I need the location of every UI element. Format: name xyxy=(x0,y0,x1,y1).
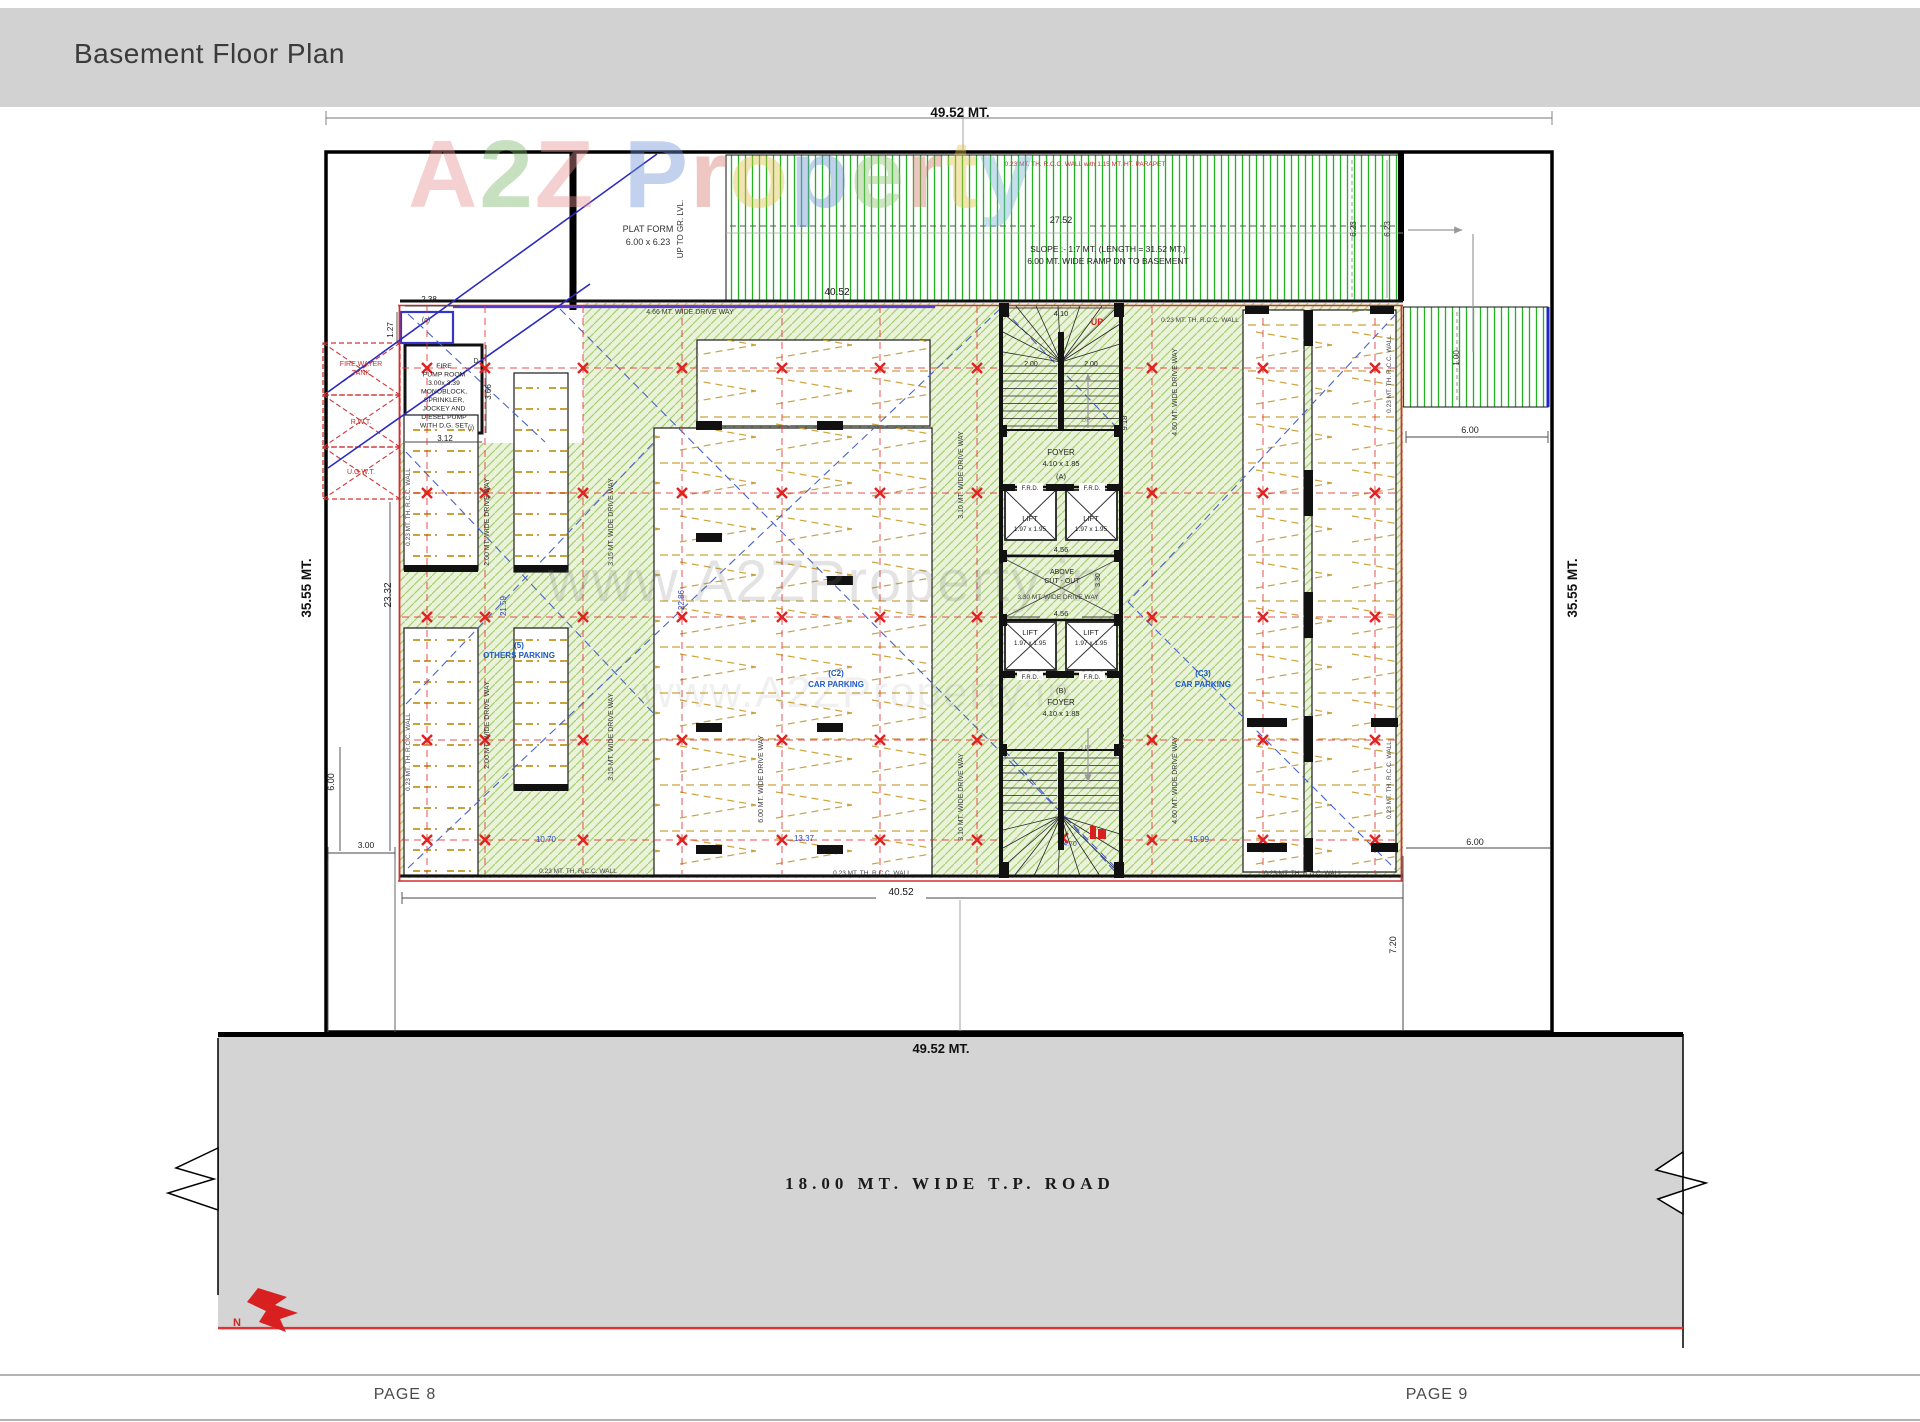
pump-room-text-4: MONOBLOCK, xyxy=(421,389,467,396)
dim-9-41: 9.41 xyxy=(1117,734,1126,749)
lift-b2-label: LIFT xyxy=(1083,628,1099,637)
pump-room-text-5: SPRINKLER, xyxy=(424,397,465,404)
watermark-letter: p xyxy=(790,121,851,228)
stair-a-up-red: UP xyxy=(1091,317,1104,327)
lift-b2-size: 1.97 x 1.95 xyxy=(1075,640,1108,647)
pump-room-text-1: FIRE xyxy=(436,363,452,370)
watermark-url: www.A2ZProperty.in xyxy=(548,548,1105,615)
driveway-3-10-label-1: 3.10 MT. WIDE DRIVE WAY xyxy=(958,431,965,519)
watermark-letter-2: 2 xyxy=(479,121,534,228)
watermark-letter: y xyxy=(979,121,1034,228)
road-label: 18.00 MT. WIDE T.P. ROAD xyxy=(785,1174,1115,1193)
wall-block xyxy=(514,784,568,791)
wall-block xyxy=(1003,484,1015,491)
fire-water-tank-label-2: TANK xyxy=(352,370,370,377)
dim-3-12: 3.12 xyxy=(437,434,453,443)
watermark-letter: e xyxy=(851,121,906,228)
wall-note-bottom-3: 0.23 MT. TH. R.C.C. WALL xyxy=(1264,870,1342,877)
driveway-3-10-label-2: 3.10 MT. WIDE DRIVE WAY xyxy=(958,753,965,841)
c3-parking-tag: (C3) xyxy=(1195,669,1211,678)
wall-block xyxy=(1107,484,1119,491)
wall-block xyxy=(999,862,1009,878)
road-area: 49.52 MT. 18.00 MT. WIDE T.P. ROAD N xyxy=(168,1032,1706,1348)
stair-divider xyxy=(1058,332,1064,430)
parking-bay-marking xyxy=(654,428,932,875)
wall-note-right-1: 0.23 MT. TH. R.C.C. WALL xyxy=(1386,335,1393,413)
fire-equipment-icon xyxy=(1098,829,1106,839)
wall-block xyxy=(1245,306,1269,314)
foyer-a-size: 4.10 x 1.85 xyxy=(1042,459,1079,468)
wall-block xyxy=(999,303,1009,317)
watermark-url-2: www.A2ZProperty.in xyxy=(642,668,1073,718)
stair-b-up-label: UP xyxy=(1081,745,1091,752)
footer-divider-top xyxy=(0,1374,1920,1376)
dim-15-99: 15.99 xyxy=(1189,835,1210,844)
wall-block xyxy=(1114,303,1124,317)
wall-block xyxy=(696,845,722,854)
wall-block xyxy=(1304,470,1313,516)
ramp-slope-note-1: SLOPE :- 1:7 MT. (LENGTH = 31.52 MT.) xyxy=(1030,244,1186,254)
ramp-slope-note-2: 6.00 MT. WIDE RAMP DN TO BASEMENT xyxy=(1027,256,1189,266)
watermark-letter: t xyxy=(945,121,979,228)
driveway-6-00-label: 6.00 MT. WIDE DRIVE WAY xyxy=(758,735,765,823)
pump-room-text-8: WITH D.G. SET xyxy=(420,423,468,430)
pump-tag-d: D xyxy=(473,358,478,365)
dim-10-70: 10.70 xyxy=(536,835,557,844)
dim-23-32: 23.32 xyxy=(383,582,394,607)
rwt-label: R.W.T. xyxy=(351,419,372,426)
pump-room-text-3: 3.00x 3.39 xyxy=(428,380,460,387)
wall-block xyxy=(1371,718,1398,727)
watermark-letter: r xyxy=(906,121,945,228)
dim-1-00: 1.00 xyxy=(1452,350,1461,366)
dim-6-23-a: 6.23 xyxy=(1349,221,1358,237)
parking-bay-marking xyxy=(1243,310,1304,872)
wall-note-bottom-2: 0.23 MT. TH. R.C.C. WALL xyxy=(833,870,911,877)
dim-2-00-a1: 2.00 xyxy=(1024,361,1038,368)
wall-block xyxy=(1247,843,1287,852)
stair-divider xyxy=(1058,752,1064,850)
wall-block xyxy=(1114,550,1122,562)
ugwt-label: U.G.W.T. xyxy=(347,469,375,476)
frd-a2: F.R.D. xyxy=(1084,486,1101,492)
dim-6-00-bottom: 6.00 xyxy=(1466,837,1484,847)
sheet: 49.52 MT. 18.00 MT. WIDE T.P. ROAD N 49.… xyxy=(0,0,1920,1422)
watermark-letter: P xyxy=(624,121,690,228)
watermark-brand: A2Z Property xyxy=(408,120,1035,230)
wall-block xyxy=(1304,592,1313,638)
parking-bay-marking xyxy=(404,628,478,875)
wall-note-right-2: 0.23 MT. TH. R.C.C. WALL xyxy=(1386,741,1393,819)
watermark-word: Property xyxy=(624,121,1035,228)
footer-divider-bottom xyxy=(0,1419,1920,1421)
dim-21-59: 21.59 xyxy=(499,595,508,616)
wall-block xyxy=(1114,862,1124,878)
foyer-a-label: FOYER xyxy=(1047,448,1075,457)
stair-a-up-label: UP xyxy=(1081,417,1091,424)
dim-left-height: 35.55 MT. xyxy=(299,558,314,617)
dim-1-27: 1.27 xyxy=(386,322,395,338)
wall-note-bottom-1: 0.23 MT. TH. R.C.C. WALL xyxy=(539,868,617,875)
frd-b2: F.R.D. xyxy=(1084,675,1101,681)
page-number-right: PAGE 9 xyxy=(1357,1386,1517,1404)
dim-ramp-40-52: 40.52 xyxy=(824,287,849,298)
others-parking-tag: (5) xyxy=(514,641,524,650)
header-bar: Basement Floor Plan xyxy=(0,8,1920,107)
fire-equipment-icon xyxy=(1090,826,1096,839)
parking-bay-marking xyxy=(697,340,930,426)
driveway-3-15-label-2: 3.15 MT. WIDE DRIVE WAY xyxy=(608,693,615,781)
side-platform xyxy=(1403,307,1548,407)
wall-block xyxy=(696,723,722,732)
c3-parking-label: CAR PARKING xyxy=(1175,680,1231,689)
others-parking-label: OTHERS PARKING xyxy=(483,651,555,660)
dim-2-38: 2.38 xyxy=(421,295,437,304)
wall-block xyxy=(817,723,843,732)
pump-tag-i: (i) xyxy=(468,425,474,432)
driveway-4-60-label-2: 4.60 MT. WIDE DRIVE WAY xyxy=(1172,736,1179,824)
dim-2-00-a2: 2.00 xyxy=(1084,361,1098,368)
page-number-left: PAGE 8 xyxy=(325,1386,485,1404)
wall-block xyxy=(1304,310,1313,346)
dim-right-height: 35.55 MT. xyxy=(1565,558,1580,617)
wall-block xyxy=(1370,306,1394,314)
dim-3-00: 3.00 xyxy=(358,840,375,850)
dim-13-37: 13.37 xyxy=(794,834,815,843)
wall-note-top: 0.23 MT. TH. R.C.C. WALL xyxy=(1161,317,1239,324)
pump-room-text-2: PUMP ROOM xyxy=(423,372,466,379)
watermark-letter-a: A xyxy=(408,121,479,228)
wall-block xyxy=(999,425,1007,437)
frd-a1: F.R.D. xyxy=(1022,486,1039,492)
dim-basement-40-52: 40.52 xyxy=(888,887,913,898)
north-label: N xyxy=(233,1317,241,1329)
dim-6-23-b: 6.23 xyxy=(1383,221,1392,237)
watermark-letter: o xyxy=(729,121,790,228)
watermark-letter: r xyxy=(690,121,729,228)
dim-4-70: 4.70 xyxy=(1063,841,1077,848)
wall-block xyxy=(1247,718,1287,727)
wall-block xyxy=(817,845,843,854)
wall-block xyxy=(1304,838,1313,872)
wall-block xyxy=(696,533,722,542)
road-width-dim: 49.52 MT. xyxy=(912,1041,969,1056)
foyer-a-tag: (A) xyxy=(1056,472,1067,481)
lift-a2-label: LIFT xyxy=(1083,514,1099,523)
driveway-4-66-label: 4.66 MT. WIDE DRIVE WAY xyxy=(646,309,734,316)
wall-block xyxy=(1114,614,1122,626)
dim-9-18: 9.18 xyxy=(1120,416,1129,431)
wall-block xyxy=(1371,843,1398,852)
pump-room-text-6: JOCKEY AND xyxy=(423,406,466,413)
page-title: Basement Floor Plan xyxy=(74,38,345,70)
platform-label-2: 6.00 x 6.23 xyxy=(626,237,671,247)
fire-water-tank-label-1: FIRE WATER xyxy=(340,361,382,368)
dim-4-10: 4.10 xyxy=(1054,309,1069,318)
driveway-4-60-label-1: 4.60 MT. WIDE DRIVE WAY xyxy=(1172,348,1179,436)
wall-note-left-2: 0.23 MT. TH. R.C.C. WALL xyxy=(405,713,412,791)
lift-b1-label: LIFT xyxy=(1022,628,1038,637)
lift-a1-size: 1.97 x 1.95 xyxy=(1014,526,1047,533)
wall-block xyxy=(817,421,843,430)
dim-top-width: 49.52 MT. xyxy=(930,105,989,120)
wall-block xyxy=(1046,484,1074,491)
wall-block xyxy=(696,421,722,430)
wall-note-left-1: 0.23 MT. TH. R.C.C. WALL xyxy=(405,468,412,546)
lift-a1-label: LIFT xyxy=(1022,514,1038,523)
wall-block xyxy=(404,565,478,572)
dim-6-00-left: 6.00 xyxy=(326,773,336,791)
wall-block xyxy=(1107,671,1119,678)
pump-room-text-7: DIESEL PUMP xyxy=(421,414,467,421)
dim-7-20: 7.20 xyxy=(1388,936,1398,954)
dim-3-66: 3.66 xyxy=(484,384,493,400)
lift-a2-size: 1.97 x 1.95 xyxy=(1075,526,1108,533)
watermark-letter-z: Z xyxy=(535,121,596,228)
dim-27-52: 27.52 xyxy=(1050,215,1073,225)
dim-6-00-top: 6.00 xyxy=(1461,425,1479,435)
parking-bay-marking xyxy=(1312,310,1396,872)
road-break-left xyxy=(168,1148,218,1210)
pump-tag-c: (c) xyxy=(422,317,430,324)
wall-block xyxy=(999,614,1007,626)
wall-block xyxy=(1304,716,1313,762)
lift-b1-size: 1.97 x 1.95 xyxy=(1014,640,1047,647)
wall-block xyxy=(999,744,1007,756)
driveway-2-00-label-1: 2.00 MT. WIDE DRIVE WAY xyxy=(484,478,491,566)
driveway-2-00-label-2: 2.00 MT. WIDE DRIVE WAY xyxy=(484,681,491,769)
